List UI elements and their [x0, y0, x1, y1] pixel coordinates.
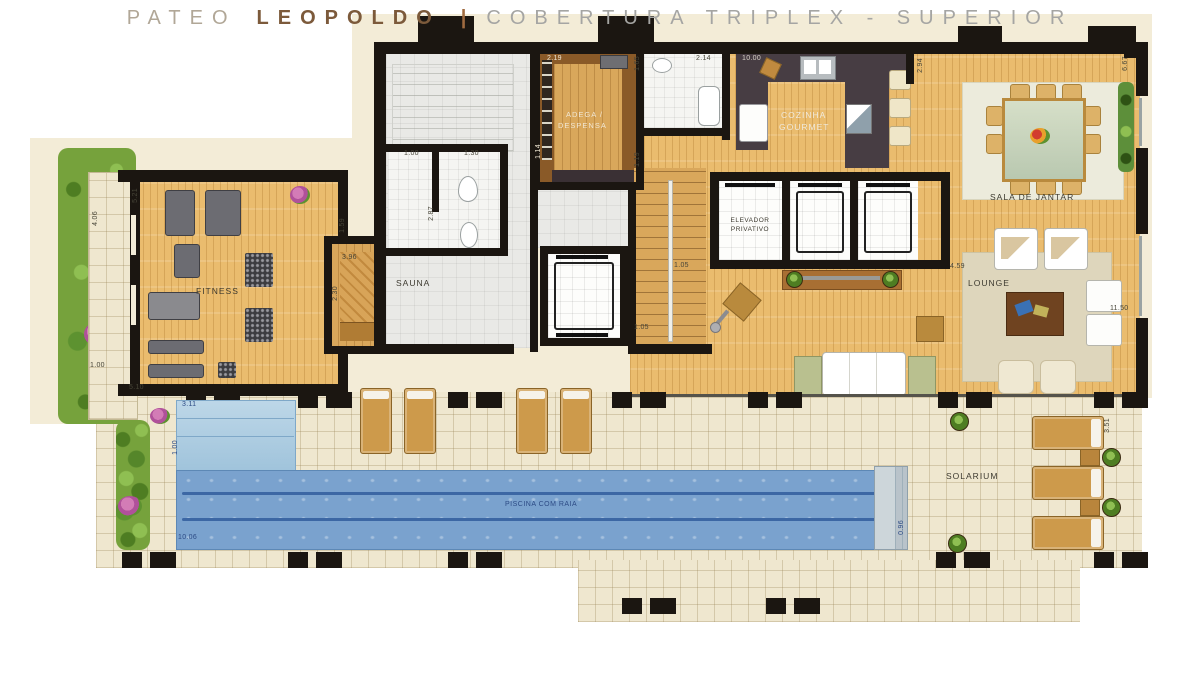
wall — [722, 44, 730, 140]
wall — [374, 344, 514, 354]
plan-subtitle: COBERTURA TRIPLEX - SUPERIOR — [486, 7, 1073, 30]
wall — [710, 260, 950, 269]
weight-rack — [245, 308, 273, 342]
service-elevator-cab — [548, 254, 620, 338]
wall — [382, 144, 508, 152]
column — [288, 552, 308, 568]
wall — [850, 172, 858, 269]
weight-bench — [148, 292, 200, 320]
fridge — [739, 104, 768, 142]
dining-chair — [1084, 106, 1101, 126]
column — [448, 552, 468, 568]
bathtub — [698, 86, 720, 126]
barbell-set — [148, 340, 204, 354]
dim-wc-depth: 2.87 — [428, 206, 435, 221]
elevator-door — [866, 183, 910, 187]
sun-lounger — [1032, 466, 1104, 500]
planter — [1118, 82, 1134, 172]
plant — [948, 534, 967, 553]
room-label-piscina: PISCINA COM RAIA — [505, 501, 577, 508]
cooktop — [846, 104, 872, 134]
title-separator: | — [461, 7, 467, 30]
lounger-pillow — [1091, 519, 1101, 547]
stair-sketch — [392, 64, 514, 152]
dim-garden-width: 1.00 — [90, 362, 105, 369]
room-label-adega-2: DESPENSA — [558, 121, 607, 130]
dim-pool-lane: 1.00 — [172, 440, 179, 455]
elevator-cab — [858, 181, 918, 260]
window — [1139, 236, 1142, 316]
exterior-wall — [374, 42, 1148, 54]
lounger-pillow — [407, 391, 433, 399]
sink — [652, 58, 672, 73]
weight-rack — [245, 253, 273, 287]
kitchen-sink — [800, 56, 836, 80]
dim-bath-side: 1.65 — [634, 56, 641, 71]
dim-wc-width: 1.30 — [464, 150, 479, 157]
dim-pool-length: 10.06 — [178, 534, 197, 541]
elevator-car — [864, 191, 912, 253]
plant — [1102, 448, 1121, 467]
room-label-adega-1: ADEGA / — [566, 110, 603, 119]
side-chair — [1086, 314, 1122, 346]
side-table-wood — [1080, 499, 1100, 516]
project-name-bold: LEOPOLDO — [257, 7, 441, 30]
telescope-eyepiece — [710, 322, 721, 333]
flower-bed — [118, 496, 142, 516]
armchair — [994, 228, 1038, 270]
column — [936, 552, 956, 568]
column — [476, 552, 502, 568]
dim-pool-width: 3.11 — [182, 401, 196, 408]
bar-stool — [889, 98, 911, 118]
column — [622, 598, 642, 614]
elevator-car — [796, 191, 844, 253]
column — [766, 598, 786, 614]
dim-sauna-width: 3.96 — [342, 254, 357, 261]
window — [131, 215, 136, 255]
column — [964, 552, 990, 568]
column — [938, 392, 958, 408]
side-table-green — [794, 356, 822, 396]
wall — [530, 44, 540, 190]
room-label-elevador-1: ELEVADOR — [718, 216, 782, 225]
project-title-bar: PATEO LEOPOLDO | COBERTURA TRIPLEX - SUP… — [0, 0, 1200, 36]
dim-kitchen-width: 10.00 — [742, 55, 761, 62]
room-label-cozinha-2: GOURMET — [779, 122, 829, 132]
elevator-car — [554, 262, 614, 330]
elevator-door — [725, 183, 775, 187]
appliance — [600, 55, 628, 69]
column — [650, 598, 676, 614]
wall — [782, 172, 790, 269]
window — [1139, 98, 1142, 146]
dim-kitchen-side: 2.94 — [917, 58, 924, 73]
lounger-pillow — [519, 391, 545, 399]
elevator-door — [798, 183, 842, 187]
column — [448, 392, 468, 408]
exercise-bike — [174, 244, 200, 278]
column — [150, 552, 176, 568]
exterior-wall — [1136, 148, 1148, 234]
wall — [324, 236, 332, 354]
bidet — [460, 222, 478, 248]
bar-stool — [889, 126, 911, 146]
exterior-wall — [1136, 50, 1148, 96]
dim-lounge-right: 11.50 — [1110, 305, 1129, 312]
wall — [644, 128, 730, 136]
exercise-bike — [205, 190, 241, 236]
stair-rail — [668, 180, 673, 342]
wall — [118, 170, 348, 182]
toilet — [458, 176, 478, 202]
lane-line — [182, 518, 898, 521]
room-label-sala-de-jantar: SALA DE JANTAR — [990, 192, 1074, 202]
sun-lounger — [360, 388, 392, 454]
room-label-cozinha-1: COZINHA — [781, 110, 826, 120]
dim-wc-door: 1.00 — [404, 150, 419, 157]
dim-adega-side: 1.14 — [535, 144, 542, 159]
sofa — [822, 352, 906, 396]
dumbbell — [218, 362, 236, 378]
dim-stair-bottom: 1.05 — [634, 324, 649, 331]
dim-fitness-top: 5.21 — [132, 188, 139, 203]
wall — [628, 344, 712, 354]
dim-stair-width: 1.19 — [634, 152, 641, 167]
pool-step — [176, 418, 294, 419]
elevator-door — [556, 333, 608, 337]
elevator-vestibule — [536, 190, 632, 248]
column — [122, 552, 142, 568]
side-table-wood — [1080, 449, 1100, 466]
lounger-pillow — [363, 391, 389, 399]
column — [966, 392, 992, 408]
room-label-lounge: LOUNGE — [968, 278, 1010, 288]
lounger-pillow — [1091, 419, 1101, 447]
wall — [382, 248, 508, 256]
dim-dining-side: 6.67 — [1122, 56, 1129, 71]
barbell-set — [148, 364, 204, 378]
column — [326, 392, 352, 408]
pool-steps — [874, 466, 908, 550]
table-centerpiece — [1030, 128, 1050, 144]
plant — [1102, 498, 1121, 517]
column — [612, 392, 632, 408]
dim-bath-width: 2.14 — [696, 55, 711, 62]
wall — [710, 172, 950, 181]
room-label-fitness: FITNESS — [196, 286, 239, 296]
dim-garden-height: 4.06 — [92, 211, 99, 226]
window — [131, 285, 136, 325]
throw-blanket — [1001, 237, 1031, 259]
armchair — [1044, 228, 1088, 270]
room-label-solarium: SOLARIUM — [946, 471, 998, 481]
column — [476, 392, 502, 408]
project-name-light: PATEO — [127, 7, 237, 30]
column — [794, 598, 820, 614]
column — [776, 392, 802, 408]
dim-solarium-side: 3.51 — [1104, 418, 1111, 433]
wall — [374, 42, 386, 352]
column — [1094, 392, 1114, 408]
dim-fitness-bottom: 5.10 — [129, 384, 144, 391]
corner-plant — [290, 186, 310, 204]
dim-sauna-height: 2.30 — [332, 286, 339, 301]
dim-lounge-left: 4.59 — [950, 263, 965, 270]
dim-stair-side: 1.05 — [674, 262, 689, 269]
side-table-green — [908, 356, 936, 396]
lounger-pillow — [1091, 469, 1101, 497]
pool-shallow — [176, 400, 296, 474]
pouf — [998, 360, 1034, 394]
column — [748, 392, 768, 408]
lounger-pillow — [563, 391, 589, 399]
dim-pool-end: 0.96 — [898, 520, 905, 535]
column — [640, 392, 666, 408]
wall — [941, 172, 950, 269]
dining-chair — [986, 134, 1003, 154]
column — [316, 552, 342, 568]
wall — [500, 144, 508, 256]
dining-chair — [986, 106, 1003, 126]
sun-lounger — [516, 388, 548, 454]
plant — [786, 271, 803, 288]
elevator-door — [556, 255, 608, 259]
lane-line — [182, 492, 898, 495]
exterior-wall — [1136, 318, 1148, 396]
garden-bottom — [116, 420, 150, 550]
throw-blanket — [1051, 237, 1081, 259]
flower-bed — [150, 408, 170, 424]
wall — [530, 182, 644, 190]
treadmill — [165, 190, 195, 236]
adega-counter — [552, 170, 636, 182]
column — [1122, 392, 1148, 408]
pouf — [1040, 360, 1076, 394]
column — [1122, 552, 1148, 568]
dim-sauna-entry: 1.59 — [339, 218, 346, 233]
column — [1094, 552, 1114, 568]
side-table-wood — [916, 316, 944, 342]
sun-lounger — [1032, 516, 1104, 550]
glass-wall — [630, 394, 1136, 397]
pool-lap-lane — [176, 470, 908, 550]
room-label-elevador: ELEVADOR PRIVATIVO — [718, 216, 782, 234]
sun-lounger — [560, 388, 592, 454]
pool-step — [176, 436, 294, 437]
sun-lounger — [404, 388, 436, 454]
wall — [432, 152, 439, 212]
plant — [950, 412, 969, 431]
elevator-cab — [790, 181, 850, 260]
room-label-elevador-2: PRIVATIVO — [718, 225, 782, 234]
floor-plan: FITNESS SAUNA ADEGA / DESPENSA COZINHA G… — [0, 0, 1200, 686]
bathroom — [388, 152, 500, 250]
sun-lounger — [1032, 416, 1104, 450]
console-runner — [802, 276, 880, 280]
plant — [882, 271, 899, 288]
column — [298, 392, 318, 408]
dining-chair — [1084, 134, 1101, 154]
adega-shelf — [542, 60, 552, 160]
dim-adega-width: 2.19 — [547, 55, 562, 62]
room-label-sauna: SAUNA — [396, 278, 430, 288]
wall — [530, 190, 538, 352]
